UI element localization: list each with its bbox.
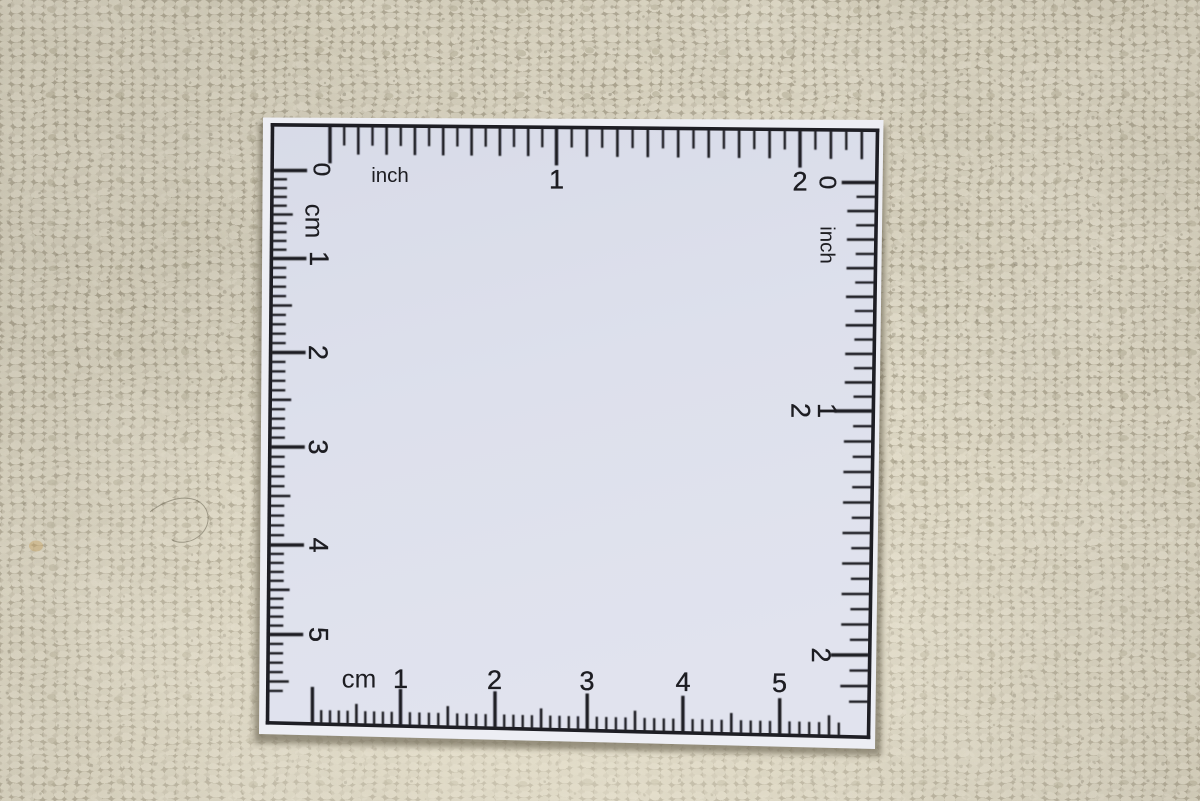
svg-text:2: 2 — [806, 647, 836, 662]
svg-text:cm: cm — [342, 664, 377, 694]
svg-text:3: 3 — [303, 439, 333, 454]
svg-text:4: 4 — [675, 667, 690, 697]
svg-text:0: 0 — [814, 176, 841, 190]
svg-text:5: 5 — [772, 668, 787, 698]
svg-text:5: 5 — [304, 627, 334, 642]
svg-text:inch: inch — [371, 164, 409, 187]
svg-text:3: 3 — [579, 666, 594, 696]
svg-text:0: 0 — [308, 163, 335, 177]
svg-text:1: 1 — [812, 403, 842, 418]
svg-text:cm: cm — [300, 204, 330, 239]
svg-text:1: 1 — [393, 664, 408, 694]
svg-text:2: 2 — [303, 345, 333, 360]
svg-text:1: 1 — [549, 165, 564, 195]
svg-text:4: 4 — [304, 537, 334, 552]
svg-text:2: 2 — [786, 403, 816, 418]
svg-text:1: 1 — [304, 251, 334, 266]
svg-text:2: 2 — [792, 167, 807, 197]
svg-text:2: 2 — [487, 665, 502, 695]
svg-text:inch: inch — [816, 226, 839, 264]
